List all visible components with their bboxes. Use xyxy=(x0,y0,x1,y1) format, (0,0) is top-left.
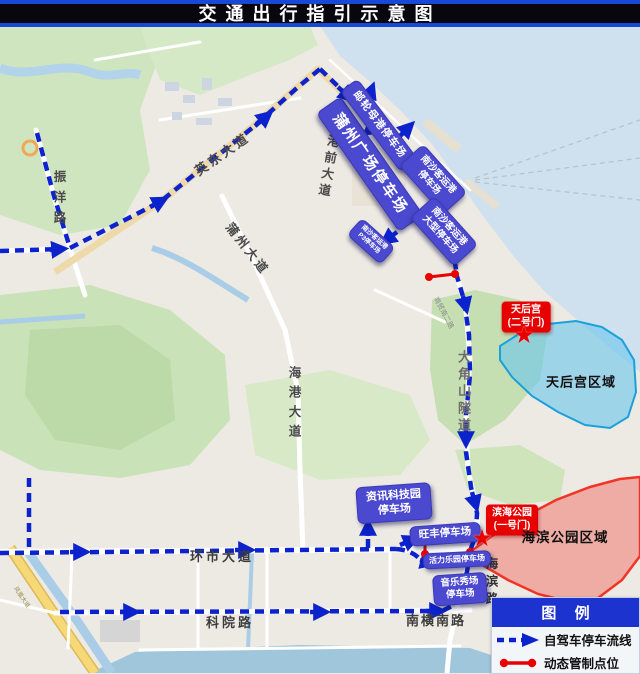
route-line-icon xyxy=(492,632,544,648)
road-label-shangmao: 商贸南二路 xyxy=(432,296,455,330)
control-star-icon: ★ xyxy=(471,527,493,551)
parking-label-nansha-p3: 南沙客运港 P3停车场 xyxy=(347,218,395,265)
road-label-dajiaoshan-tunnel: 大角山隧道 xyxy=(457,350,470,435)
road-label-puzhou: 蒲州大道 xyxy=(223,221,271,278)
region-label-tianhou: 天后宫区域 xyxy=(546,372,616,391)
road-label-zhenyang: 振洋路 xyxy=(52,170,65,232)
legend-label-route: 自驾车停车流线 xyxy=(544,630,632,649)
legend: 图 例 自驾车停车流线 动态管制点位 xyxy=(491,597,640,674)
control-star-icon: ★ xyxy=(513,324,535,348)
parking-label-vitality-park: 活力乐园停车场 xyxy=(423,550,492,570)
road-label-fenghuang: 凤凰大道 xyxy=(12,586,30,609)
page-title: 交通出行指引示意图 xyxy=(199,5,442,23)
road-label-gangqian: 港前大道 xyxy=(315,133,339,200)
legend-row-control: 动态管制点位 xyxy=(492,652,639,673)
parking-label-music-show: 音乐秀场 停车场 xyxy=(432,572,488,606)
road-label-keyuan: 科院路 xyxy=(206,616,254,629)
road-label-haigang: 海港大道 xyxy=(287,366,300,444)
control-point-icon xyxy=(492,655,544,671)
parking-label-nansha-port-large: 南沙客运港 大型停车场 xyxy=(410,196,478,267)
legend-label-control: 动态管制点位 xyxy=(544,653,619,672)
legend-row-route: 自驾车停车流线 xyxy=(492,629,639,650)
road-label-nanheng: 南横南路 xyxy=(406,614,466,627)
parking-label-wangfeng: 旺丰停车场 xyxy=(409,522,481,547)
region-label-haibin: 海滨公园区域 xyxy=(522,526,609,546)
traffic-guide-map: 振洋路 英东大道 港前大道 蒲州大道 商贸南二路 海港大道 大角山隧道 环市大道… xyxy=(0,0,640,673)
legend-header: 图 例 xyxy=(492,598,639,627)
parking-label-infotech-park: 资讯科技园 停车场 xyxy=(355,482,432,524)
title-bar: 交通出行指引示意图 xyxy=(0,0,640,27)
road-label-huanshi: 环市大道 xyxy=(190,550,254,563)
map-label-overlay: 振洋路 英东大道 港前大道 蒲州大道 商贸南二路 海港大道 大角山隧道 环市大道… xyxy=(0,0,640,673)
road-label-yingdong: 英东大道 xyxy=(192,130,252,177)
